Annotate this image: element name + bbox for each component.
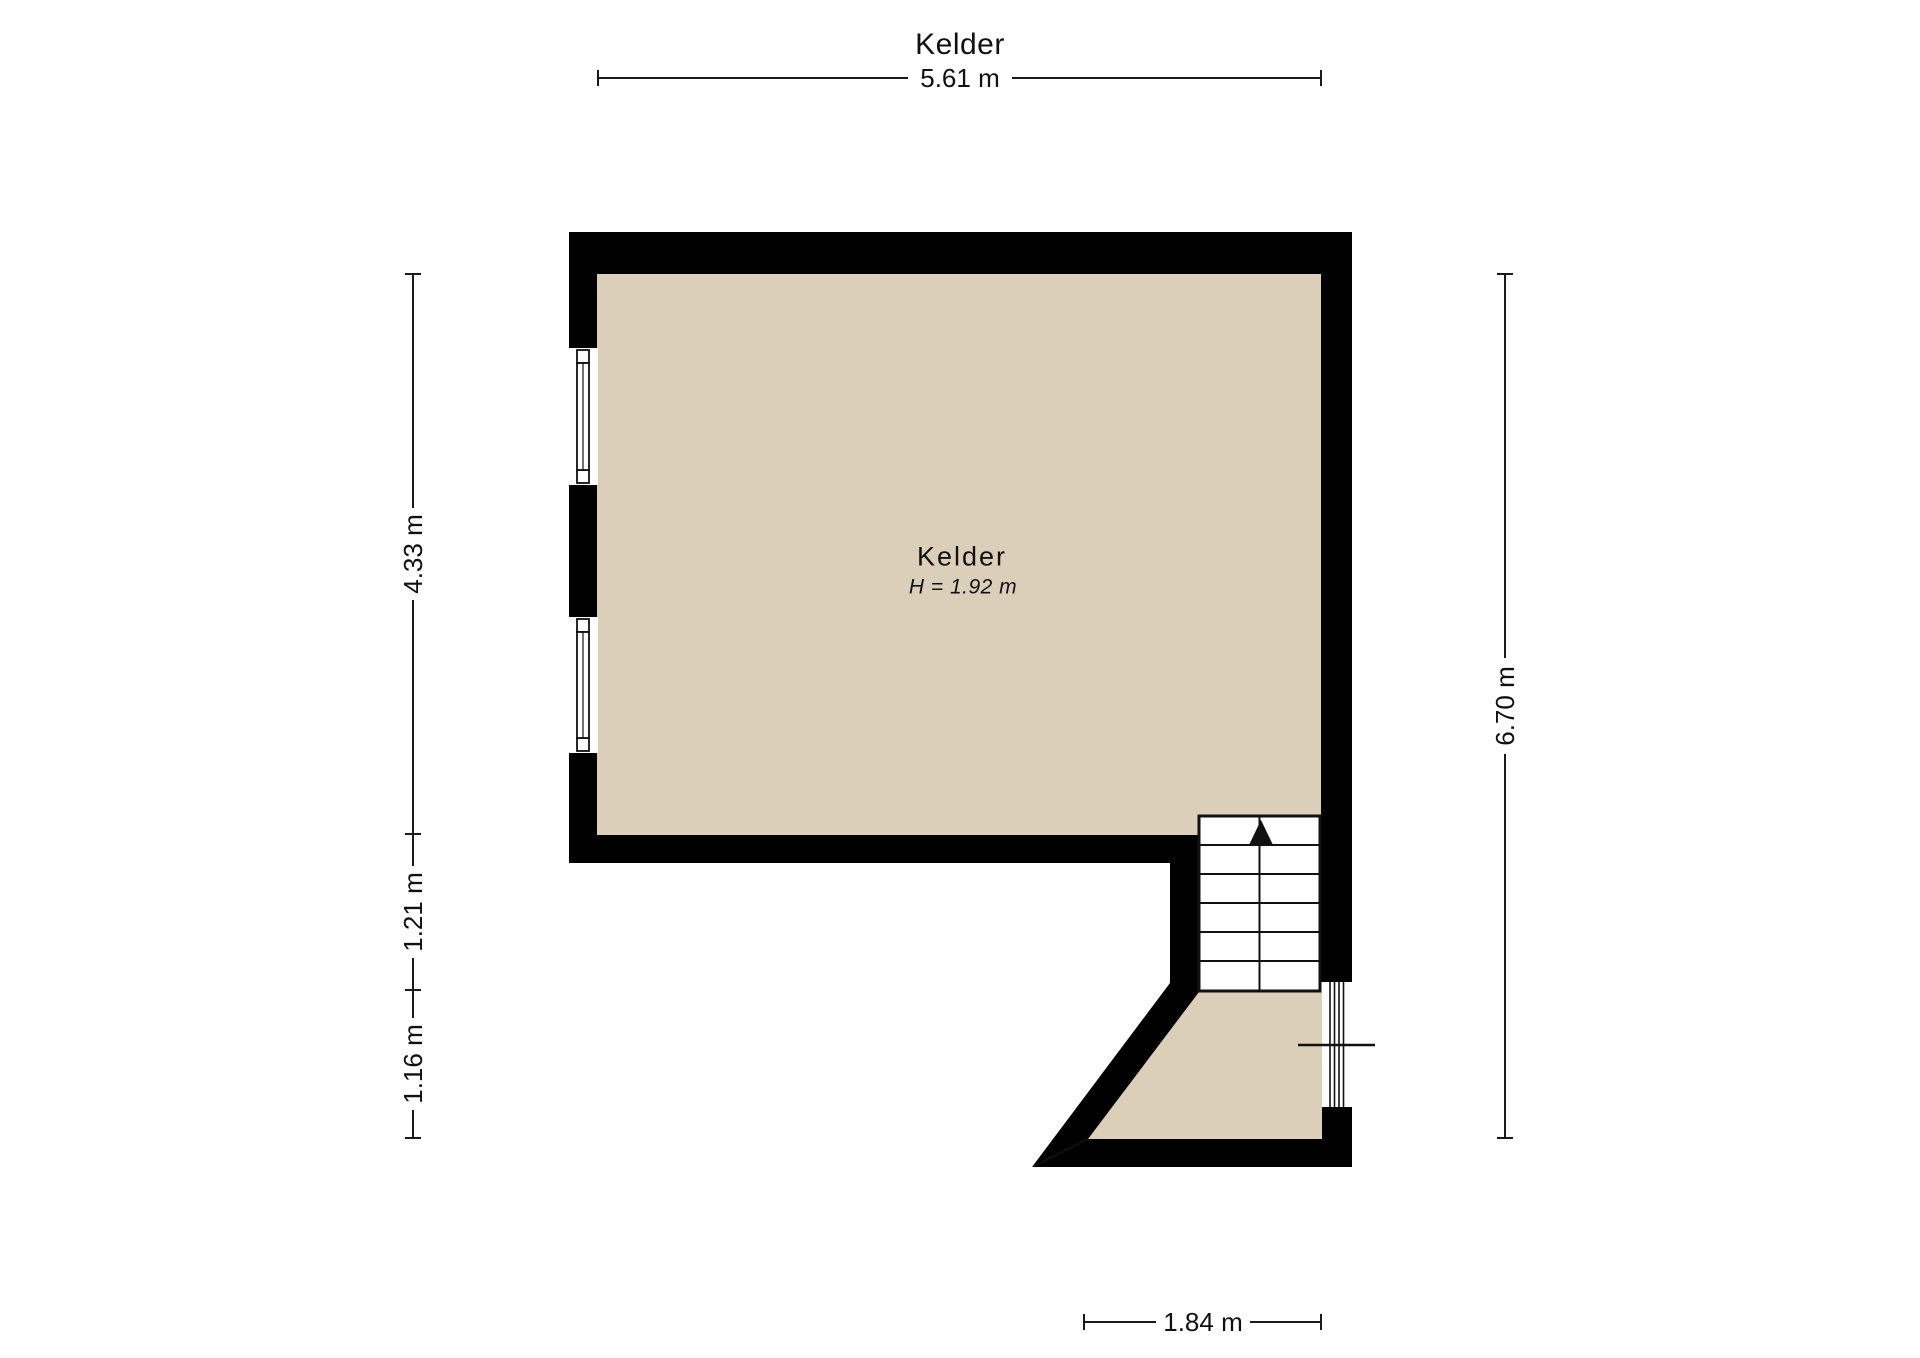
dimension-label-left-middle: 1.21 m [400, 872, 426, 952]
wall-right-lower [1322, 1107, 1352, 1167]
dimension-line-left [405, 274, 421, 1138]
dimension-label-left-upper: 4.33 m [400, 514, 426, 594]
dimension-label-left-lower: 1.16 m [400, 1024, 426, 1104]
room-height-label: H = 1.92 m [909, 577, 1017, 598]
room-name-label: Kelder [917, 544, 1007, 571]
window-icon [568, 617, 598, 753]
floorplan-drawing [0, 0, 1920, 1358]
wall-bottom-main [569, 835, 1199, 863]
dimension-label-bottom: 1.84 m [1163, 1309, 1243, 1335]
dimension-label-right: 6.70 m [1492, 666, 1518, 746]
wall-bottom-lower [1032, 1139, 1352, 1167]
wall-top [569, 232, 1352, 274]
wall-right [1321, 232, 1352, 982]
floor-area [597, 274, 1322, 1139]
wall-connector [1170, 863, 1199, 992]
window-icon [568, 348, 598, 485]
stairs-icon [1199, 816, 1320, 991]
floorplan-canvas: Kelder 5.61 m 4.33 m 1.21 m 1.16 m 6.70 … [0, 0, 1920, 1358]
dimension-label-top: 5.61 m [920, 65, 1000, 91]
floor-title: Kelder [915, 30, 1005, 60]
